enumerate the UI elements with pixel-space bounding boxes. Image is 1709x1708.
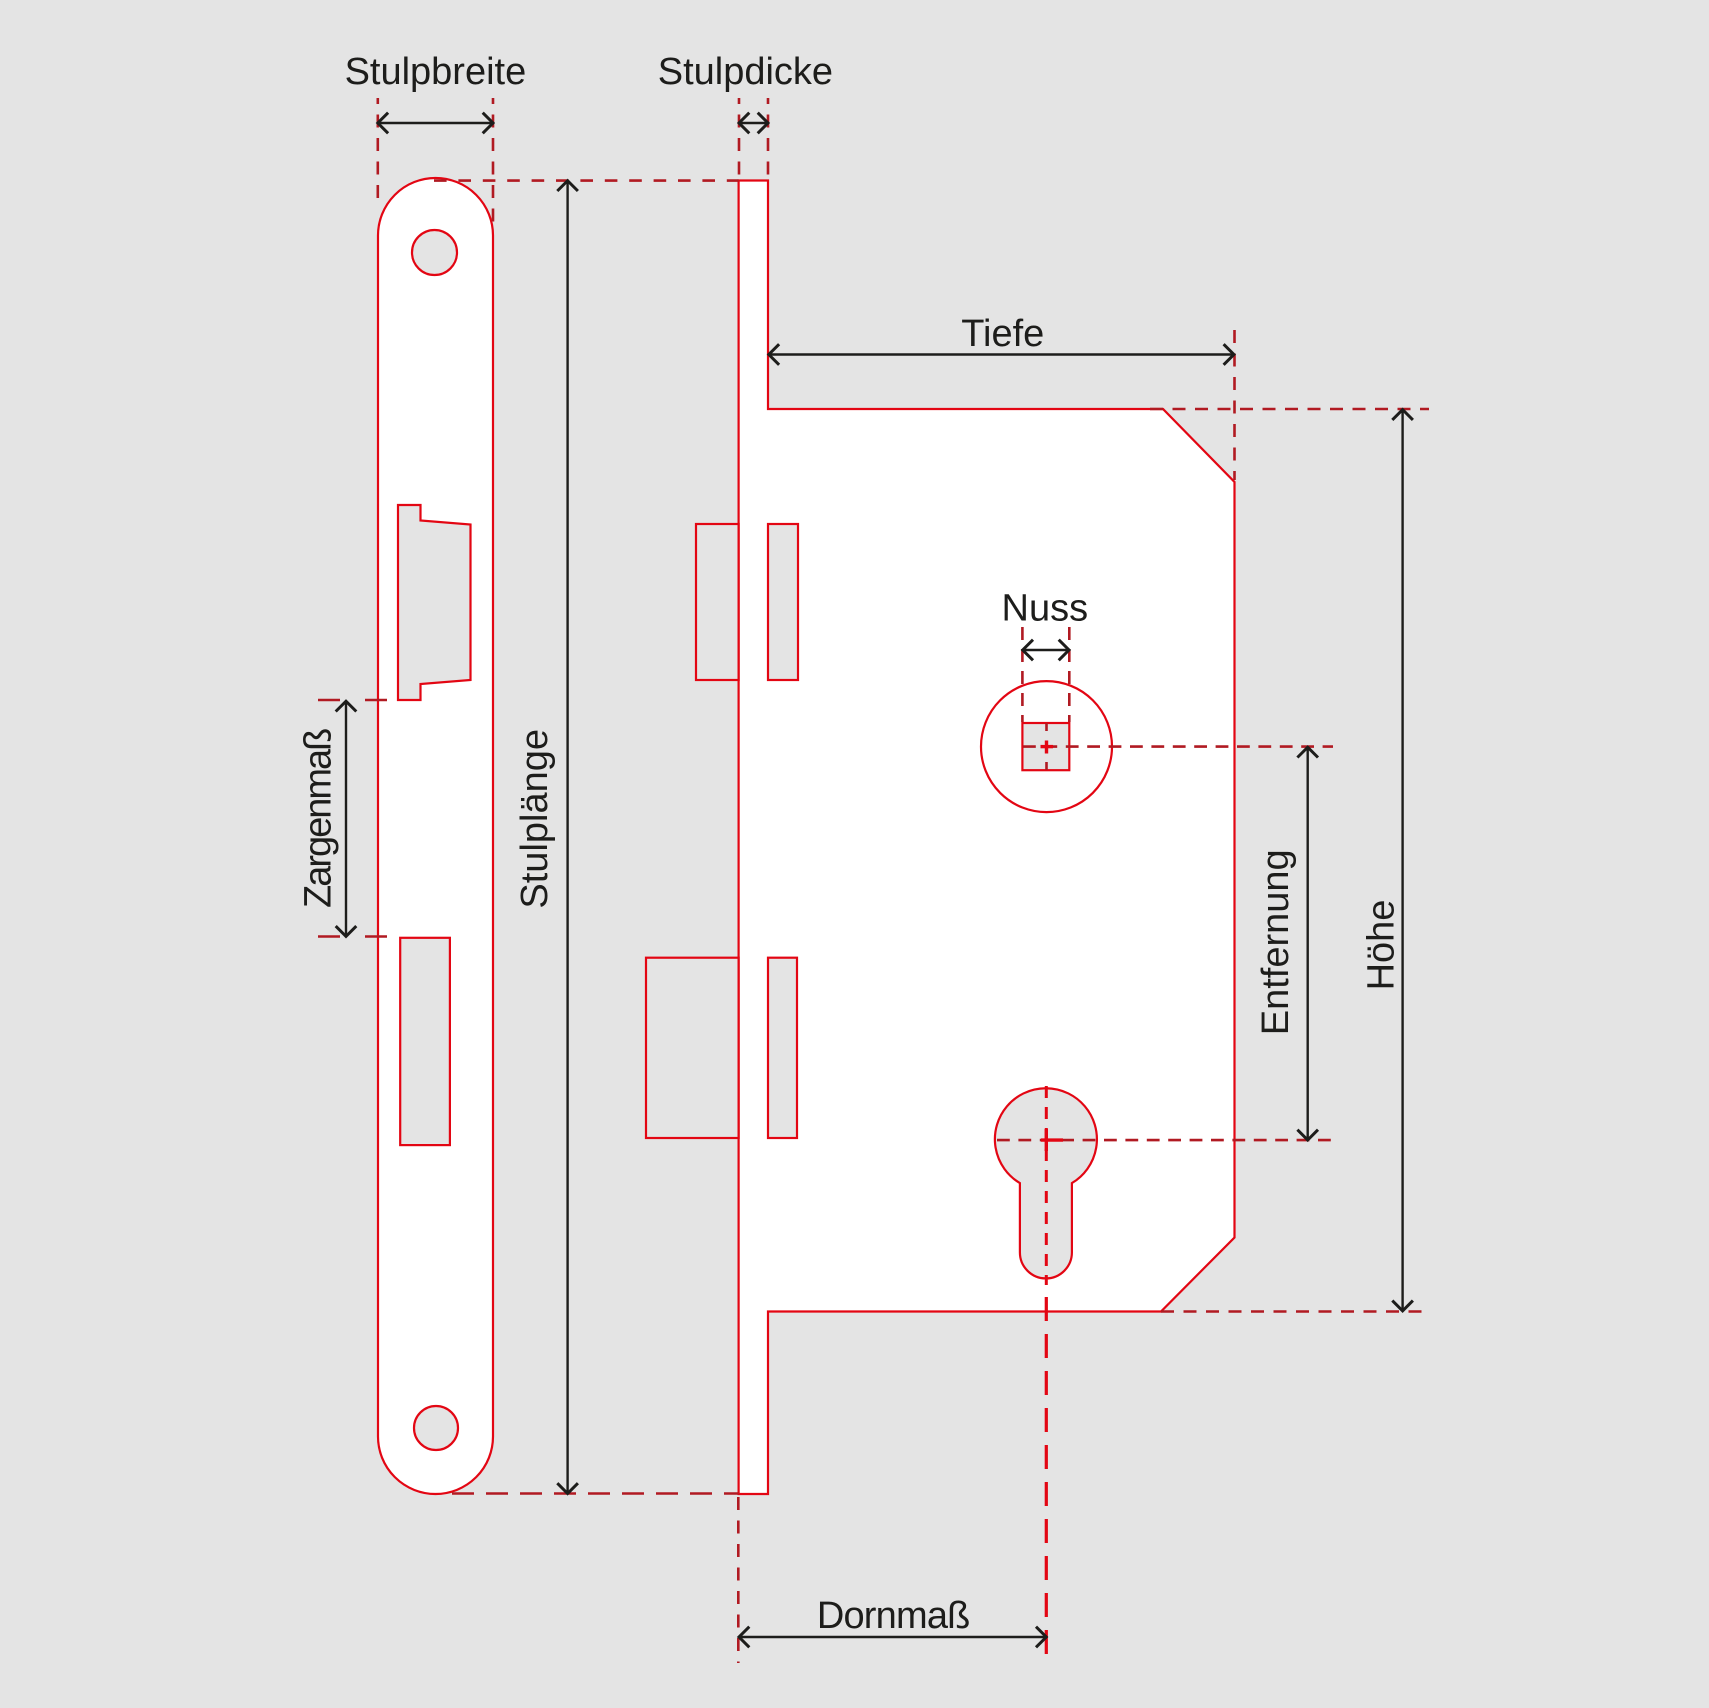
svg-text:Zargenmaß: Zargenmaß bbox=[298, 729, 340, 908]
svg-text:Entfernung: Entfernung bbox=[1255, 849, 1297, 1035]
svg-text:Nuss: Nuss bbox=[1002, 587, 1089, 629]
svg-text:Höhe: Höhe bbox=[1360, 900, 1402, 991]
svg-text:Stulplänge: Stulplänge bbox=[514, 729, 556, 909]
svg-text:Stulpdicke: Stulpdicke bbox=[658, 51, 833, 93]
svg-text:Dornmaß: Dornmaß bbox=[817, 1595, 970, 1637]
svg-text:Stulpbreite: Stulpbreite bbox=[345, 51, 527, 93]
svg-text:Tiefe: Tiefe bbox=[961, 313, 1044, 355]
